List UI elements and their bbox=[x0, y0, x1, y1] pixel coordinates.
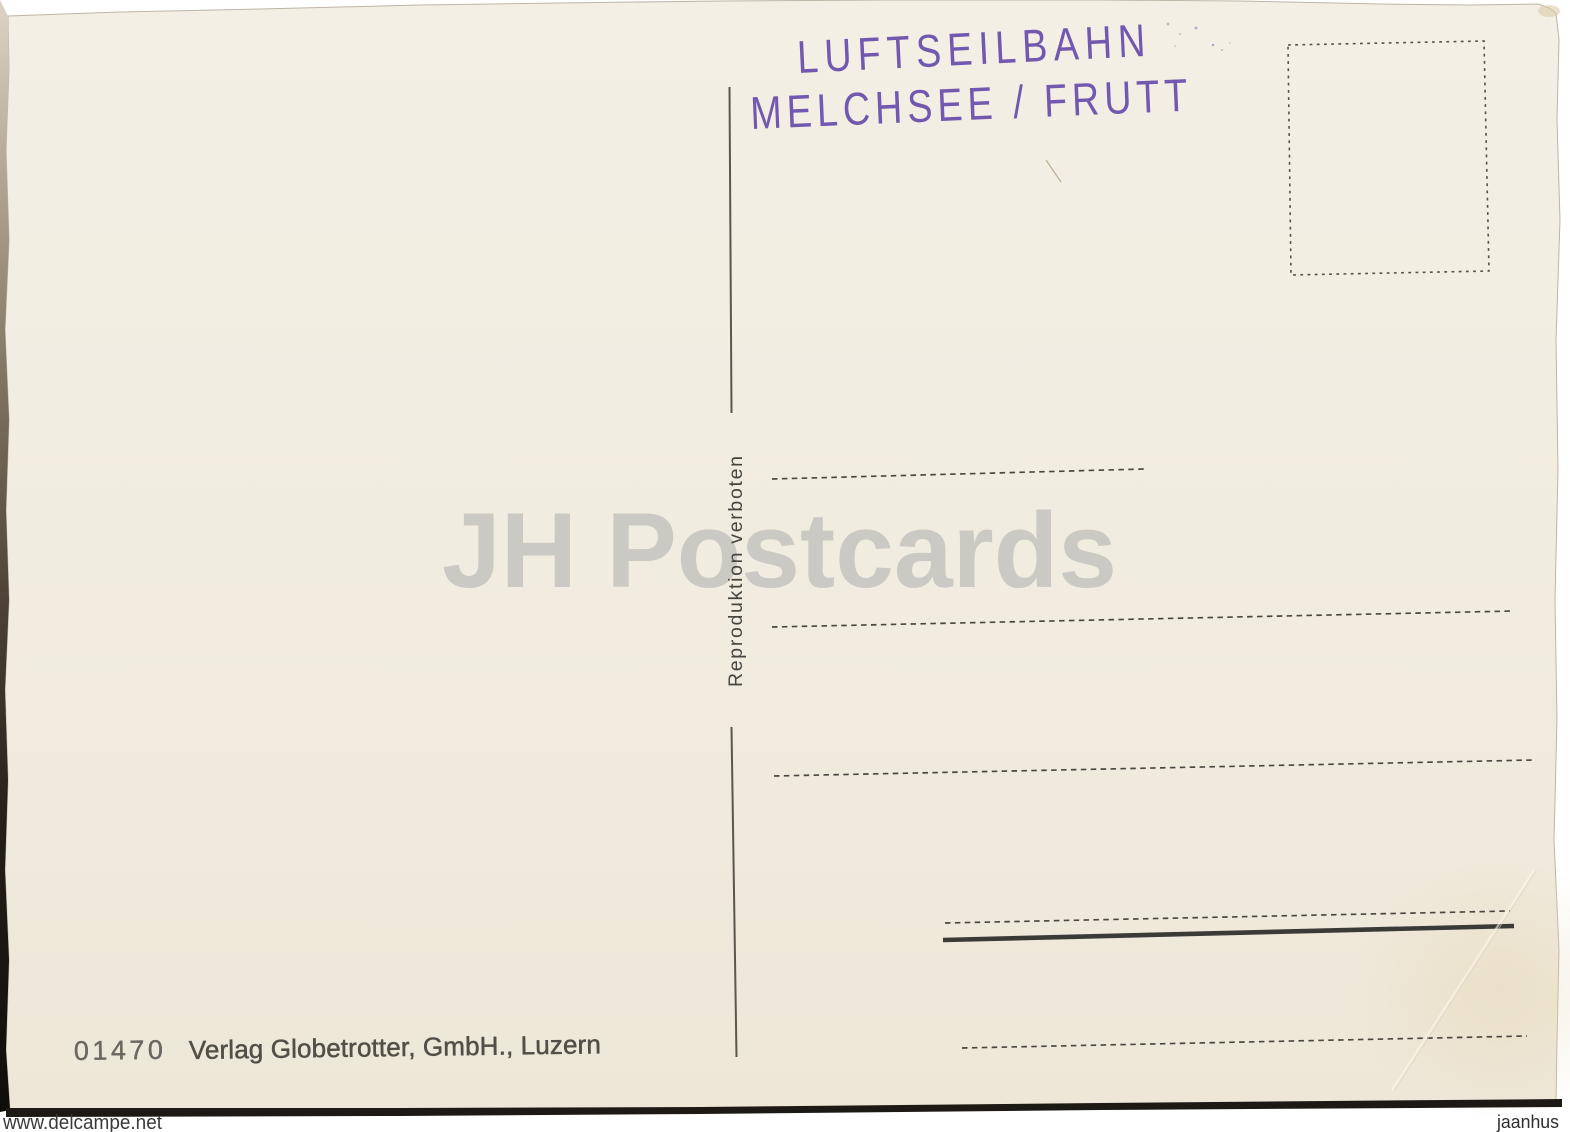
svg-text:Reproduktion verboten: Reproduktion verboten bbox=[725, 456, 747, 687]
svg-text:www.delcampe.net: www.delcampe.net bbox=[2, 1112, 162, 1132]
svg-text:01470: 01470 bbox=[74, 1035, 163, 1066]
svg-text:JH Postcards: JH Postcards bbox=[442, 490, 1117, 610]
svg-text:Verlag Globetrotter, GmbH., Lu: Verlag Globetrotter, GmbH., Luzern bbox=[189, 1029, 601, 1065]
svg-text:jaanhus: jaanhus bbox=[1496, 1112, 1559, 1132]
